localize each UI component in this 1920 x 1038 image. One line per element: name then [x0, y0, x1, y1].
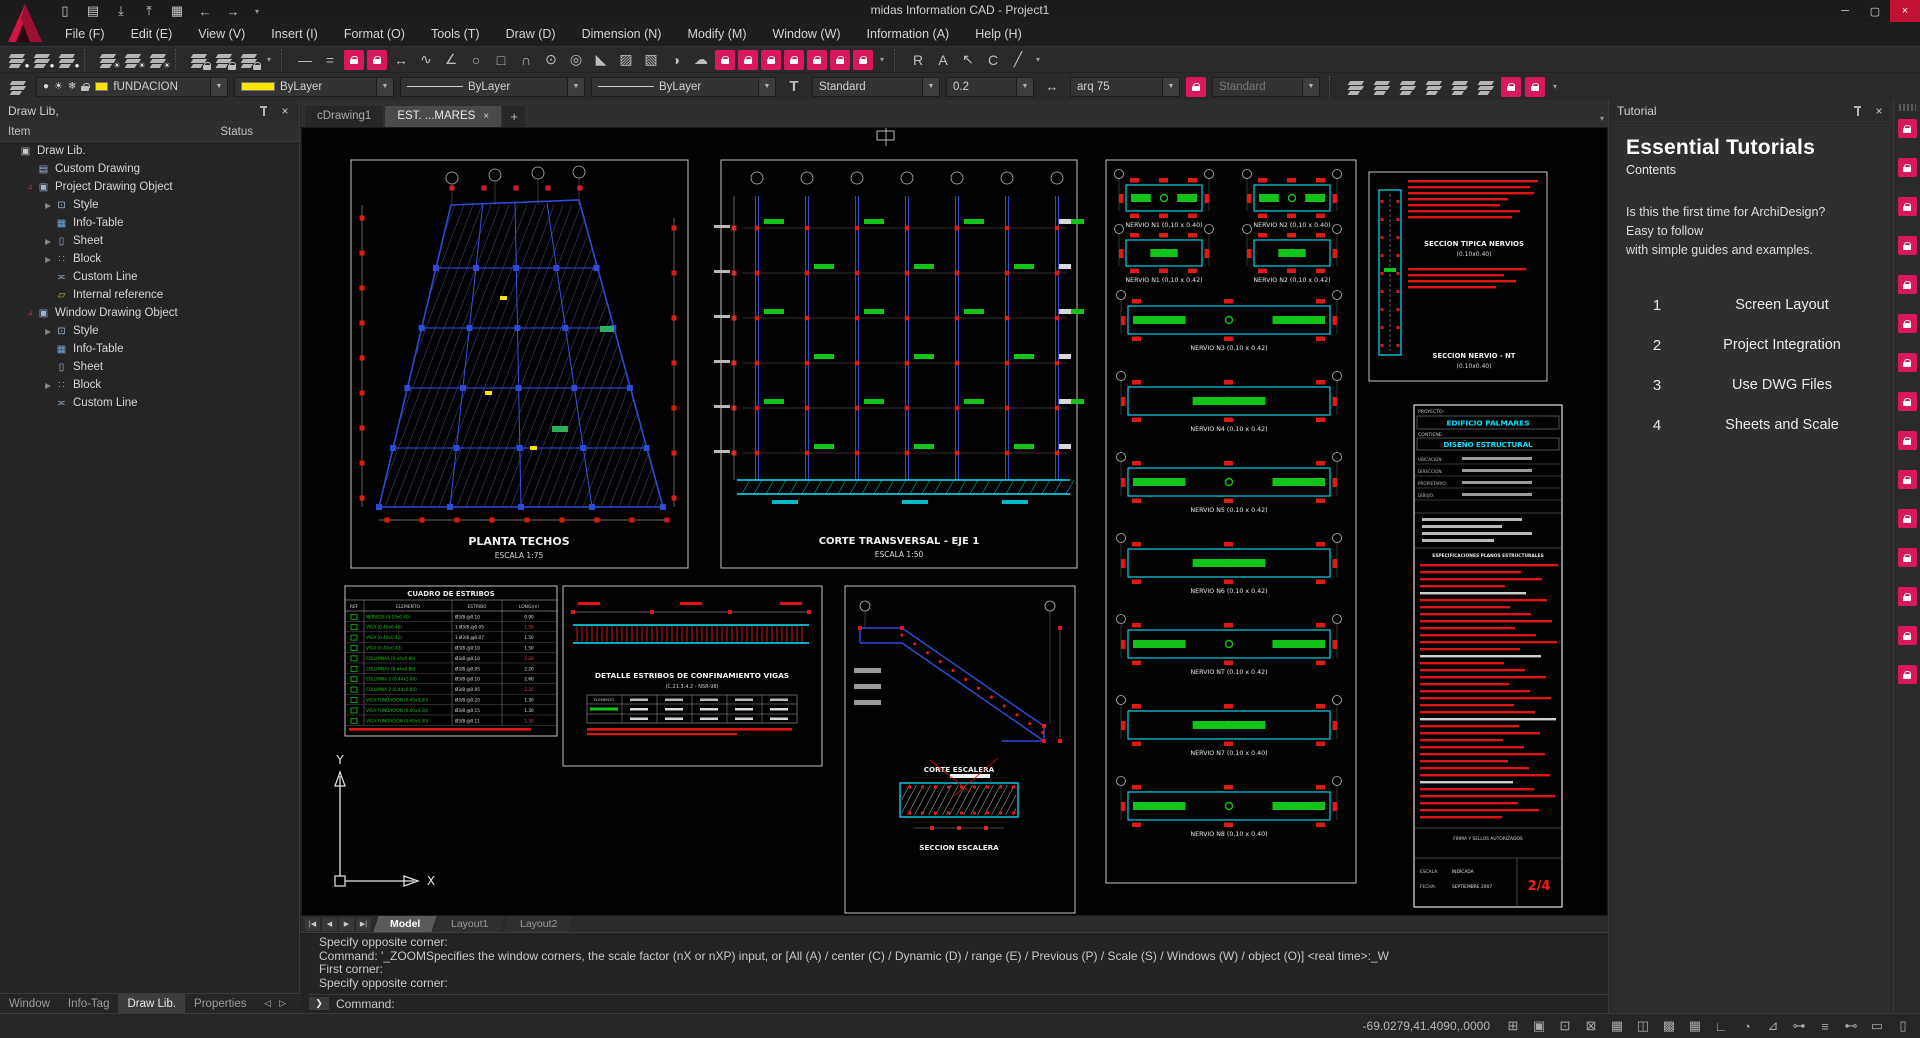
style-icon: ⊡: [54, 326, 69, 337]
layer-on-icon: ●: [43, 81, 49, 92]
tree-item-label: Info-Table: [73, 343, 124, 355]
tutorial-item-label: Screen Layout: [1688, 297, 1876, 313]
properties-bar: ● ☀ ❄ fUNDACION ▼ ByLayer ▼ ByLayer ▼: [0, 72, 1920, 100]
quick-access-options-icon[interactable]: ▾: [252, 7, 262, 16]
layer-translate-icon[interactable]: [1371, 76, 1393, 98]
tree-item-info-table[interactable]: ▦Info-Table: [0, 214, 299, 232]
locked-tool-icon[interactable]: [1898, 314, 1917, 333]
info-table-icon: ▦: [54, 218, 69, 229]
collapsed-icon[interactable]: ▶: [42, 237, 54, 246]
stirrup-length: 1.30: [524, 718, 534, 723]
clean-screen-icon[interactable]: ▭: [1866, 1016, 1888, 1036]
menu-item-format[interactable]: Format (O): [331, 22, 418, 46]
tree-item-label: Style: [73, 199, 99, 211]
window-title: midas Information CAD - Project1: [0, 3, 1920, 17]
otrack-icon[interactable]: ⊶: [1788, 1016, 1810, 1036]
double-line-tool-icon[interactable]: =: [319, 49, 341, 71]
stirrup-col-header: LONG(m): [519, 604, 539, 610]
linetype-sample: [407, 86, 463, 88]
layer-thaw-icon: ☀: [54, 81, 63, 92]
collapsed-icon[interactable]: ▶: [42, 255, 54, 264]
panel-tab-arrows: ◁▷: [264, 998, 300, 1009]
tree-item-custom-line[interactable]: ≍Custom Line: [0, 394, 299, 412]
layer-match-icon[interactable]: [1423, 76, 1445, 98]
pin-icon[interactable]: ⊡: [1554, 1016, 1576, 1036]
titleblock-scale-value: INDICADA: [1452, 869, 1474, 875]
stirrup-element: COLUMNA 2 (0.44x1.06): [366, 677, 417, 682]
tree-item-internal-reference[interactable]: ▱Internal reference: [0, 286, 299, 304]
draw-lib-panel-title: Draw Lib,: [8, 104, 59, 118]
lineweight-combo[interactable]: ByLayer ▼: [591, 77, 776, 97]
gradient-tool-icon[interactable]: ◑: [665, 49, 687, 71]
drawing-tab-cdrawing1[interactable]: cDrawing1: [305, 106, 383, 127]
tutorial-item-sheets-and-scale[interactable]: 4Sheets and Scale: [1626, 405, 1876, 445]
stirrup-length: 2.60: [524, 677, 534, 682]
panel-tab-properties[interactable]: Properties: [185, 994, 255, 1014]
stirrup-element: VIGA (0.40x0.42): [366, 635, 402, 640]
tree-item-label: Custom Drawing: [55, 163, 140, 175]
menu-item-insert[interactable]: Insert (I): [258, 22, 331, 46]
drawing-tab-strip: cDrawing1EST. ...MARES×+▾: [301, 100, 1608, 127]
layer-visibility-3-icon[interactable]: ●: [56, 49, 78, 71]
ui-lock-icon[interactable]: ▯: [1892, 1016, 1914, 1036]
menu-item-view[interactable]: View (V): [185, 22, 258, 46]
titleblock-scale-label: ESCALA:: [1420, 869, 1439, 875]
stirrup-spec: Ø3/8 @0.10: [455, 677, 480, 682]
copy-properties-icon[interactable]: C: [982, 49, 1004, 71]
layer-freeze-icon[interactable]: ☀: [97, 49, 119, 71]
stirrup-length: 1.50: [524, 625, 534, 630]
expanded-icon[interactable]: ⊿: [24, 183, 36, 191]
stirrup-length: 1.30: [524, 698, 534, 703]
nervio-label: NERVIO N1 (0.10 x 0.40): [1125, 222, 1202, 229]
tree-item-label: Custom Line: [73, 397, 138, 409]
pin-icon[interactable]: [258, 105, 270, 117]
edit-block-icon[interactable]: ╱: [1007, 49, 1029, 71]
minimize-button[interactable]: ─: [1830, 0, 1860, 22]
command-history-line: Command: '_ZOOMSpecifies the window corn…: [319, 950, 1608, 964]
tree-item-window-drawing-object[interactable]: ⊿▣Window Drawing Object: [0, 304, 299, 322]
locked-tool-icon[interactable]: [1898, 236, 1917, 255]
redo-icon[interactable]: →: [224, 4, 242, 19]
tab-overflow-icon[interactable]: ▾: [1600, 114, 1604, 123]
current-text-style: Standard: [819, 81, 866, 93]
layout-nav-icon[interactable]: ◀: [322, 918, 337, 931]
arc-tool-icon[interactable]: ∩: [515, 49, 537, 71]
tree-item-style[interactable]: ▶⊡Style: [0, 322, 299, 340]
dim-style-combo-arrow[interactable]: ▼: [1162, 78, 1179, 96]
tutorial-item-screen-layout[interactable]: 1Screen Layout: [1626, 285, 1876, 325]
tutorial-item-use-dwg-files[interactable]: 3Use DWG Files: [1626, 365, 1876, 405]
collapsed-icon[interactable]: ▶: [42, 381, 54, 390]
stirrup-col-header: ELEMENTO: [396, 604, 421, 610]
text-style-combo[interactable]: Standard ▼: [812, 77, 940, 97]
tutorial-item-project-integration[interactable]: 2Project Integration: [1626, 325, 1876, 365]
panel-tab-scroll-icon[interactable]: ◁: [264, 998, 271, 1009]
titleblock-field-label: PROPIETARIO:: [1418, 481, 1447, 486]
lineweight-icon[interactable]: ≡: [1814, 1016, 1836, 1036]
locked-tool-icon[interactable]: [367, 50, 387, 70]
color-combo[interactable]: ByLayer ▼: [234, 77, 394, 97]
snap-grid-icon[interactable]: ▦: [1684, 1016, 1706, 1036]
rectangle-tool-icon[interactable]: □: [490, 49, 512, 71]
ortho-icon[interactable]: ∟: [1710, 1016, 1732, 1036]
nervio-nt-title: SECCION NERVIO - NT: [1433, 352, 1516, 360]
dim-style-icon: ↔: [1040, 76, 1064, 98]
current-text-size: 0.2: [953, 81, 969, 93]
stirrup-length: 0.90: [524, 614, 534, 619]
stirrup-spec: 1 Ø3/8 @0.07: [455, 635, 484, 640]
polar-icon[interactable]: ◔: [1736, 1016, 1758, 1036]
undo-icon[interactable]: ←: [196, 4, 214, 19]
tree-item-label: Style: [73, 325, 99, 337]
locked-tool-icon[interactable]: [1898, 119, 1917, 138]
export-icon[interactable]: ▦: [168, 3, 186, 19]
stirrup-element: VIGA (0.40x0.40): [366, 625, 402, 630]
quick-access-toolbar: ▯▤⤓⤒▦←→▾: [56, 1, 262, 21]
drawing-tab-label: cDrawing1: [317, 106, 371, 127]
nervio-label: NERVIO N8 (0.10 x 0.40): [1190, 831, 1267, 838]
tutorial-intro-line: Is this the first time for ArchiDesign?: [1626, 203, 1876, 222]
drawing-object-icon: ▣: [36, 308, 51, 319]
dim-style-combo[interactable]: arq 75 ▼: [1070, 77, 1180, 97]
nervio-label: NERVIO N3 (0.10 x 0.42): [1190, 345, 1267, 352]
titleblock-spec-header: ESPECIFICACIONES PLANOS ESTRUCTURALES: [1432, 553, 1544, 559]
command-prompt-icon: ❯: [309, 997, 329, 1010]
layout-tab-bar: |◀◀▶▶|ModelLayout1Layout2: [301, 916, 1608, 932]
tree-item-label: Window Drawing Object: [55, 307, 178, 319]
toolbar-grip[interactable]: [1899, 104, 1916, 111]
locked-tool-icon[interactable]: [761, 50, 781, 70]
locked-tool-icon[interactable]: [1898, 548, 1917, 567]
tutorial-subheading: Contents: [1626, 163, 1876, 177]
model-canvas[interactable]: PLANTA TECHOSESCALA 1:75CORTE TRANSVERSA…: [301, 127, 1608, 916]
stair-detail-title: SECCION ESCALERA: [919, 843, 999, 852]
stirrup-col-header: ESTRIBO: [468, 604, 488, 610]
tutorial-item-label: Sheets and Scale: [1688, 417, 1876, 433]
stirrup-element: COLUMNA 2 (0.44x0.86): [366, 687, 417, 692]
menu-item-modify[interactable]: Modify (M): [674, 22, 759, 46]
spline-tool-icon[interactable]: ∿: [415, 49, 437, 71]
layer-freeze-3-icon[interactable]: ☀: [147, 49, 169, 71]
locked-tool-icon[interactable]: [1898, 353, 1917, 372]
stirrup-spec: Ø3/8 @0.10: [455, 656, 480, 661]
view-box-icon[interactable]: ⊠: [1580, 1016, 1602, 1036]
ellipse-tool-icon[interactable]: ○: [465, 49, 487, 71]
hatch-2-tool-icon[interactable]: ▧: [640, 49, 662, 71]
circle-tool-icon[interactable]: ⊙: [540, 49, 562, 71]
text-size-combo[interactable]: 0.2 ▼: [946, 77, 1034, 97]
locked-tool-icon[interactable]: [1898, 587, 1917, 606]
current-table-style: Standard: [1219, 81, 1266, 93]
column-header-status: Status: [220, 126, 291, 138]
locked-tool-icon[interactable]: [1898, 470, 1917, 489]
layout-nav-icon[interactable]: ▶|: [356, 918, 371, 931]
tree-item-label: Draw Lib.: [37, 145, 86, 157]
locked-tool-icon[interactable]: [1898, 392, 1917, 411]
titleblock-project-label: PROYECTO:: [1418, 409, 1445, 415]
title-bar: midas Information CAD - Project1 ─ ▢ × ▯…: [0, 0, 1920, 22]
stirrup-length: 2.20: [524, 666, 534, 671]
layer-merge-icon[interactable]: [1449, 76, 1471, 98]
tree-item-custom-drawing[interactable]: ▤Custom Drawing: [0, 160, 299, 178]
layer-visibility-2-icon[interactable]: ●: [31, 49, 53, 71]
layer-unlock-icon[interactable]: [238, 49, 260, 71]
tree-item-sheet[interactable]: ▯Sheet: [0, 358, 299, 376]
save-icon[interactable]: ⤓: [112, 3, 130, 19]
expanded-icon[interactable]: ⊿: [24, 309, 36, 317]
layer-combo[interactable]: ● ☀ ❄ fUNDACION ▼: [36, 77, 228, 97]
info-table-icon: ▦: [54, 344, 69, 355]
menu-item-information[interactable]: Information (A): [854, 22, 963, 46]
stirrup-spec: Ø3/8 @0.05: [455, 666, 480, 671]
text-style-combo-arrow[interactable]: ▼: [922, 78, 939, 96]
locked-tool-icon[interactable]: [1898, 197, 1917, 216]
titleblock-date-label: FECHA:: [1420, 884, 1436, 890]
command-window[interactable]: Specify opposite corner:Command: '_ZOOMS…: [301, 932, 1608, 1013]
column-header-item: Item: [8, 126, 30, 138]
stirrup-spec: Ø3/8 @0.20: [455, 698, 480, 703]
locked-tool-icon[interactable]: [1898, 665, 1917, 684]
grid-icon[interactable]: ▩: [1658, 1016, 1680, 1036]
tree-item-label: Block: [73, 253, 101, 265]
layer-lock-2-icon[interactable]: [213, 49, 235, 71]
tutorial-intro-line: Easy to follow: [1626, 222, 1876, 241]
stirrup-length: 1.30: [524, 708, 534, 713]
angle-tool-icon[interactable]: ∠: [440, 49, 462, 71]
draw-lib-tree: ▣Draw Lib.▤Custom Drawing⊿▣Project Drawi…: [0, 142, 299, 412]
save-as-icon[interactable]: ⤒: [140, 3, 158, 19]
close-button[interactable]: ×: [1890, 0, 1920, 22]
layer-color-swatch: [95, 82, 108, 91]
lineweight-combo-arrow[interactable]: ▼: [758, 78, 775, 96]
toolbar-separator: [281, 49, 288, 71]
maximize-button[interactable]: ▢: [1860, 0, 1890, 22]
titleblock-page-number: 2/4: [1528, 879, 1551, 894]
nervio-label: NERVIO N2 (0.10 x 0.42): [1253, 277, 1330, 284]
layer-manager-icon[interactable]: [6, 76, 30, 98]
custom-line-icon: ≍: [54, 398, 69, 409]
current-lineweight: ByLayer: [659, 81, 701, 93]
sheet-icon: ▯: [54, 362, 69, 373]
toolbar-more-icon[interactable]: ▾: [1549, 76, 1561, 98]
tutorial-heading: Essential Tutorials: [1626, 136, 1876, 160]
locked-tool-icon[interactable]: [1525, 77, 1545, 97]
layer-states-icon[interactable]: [1345, 76, 1367, 98]
stirrup-table-title: CUADRO DE ESTRIBOS: [407, 590, 495, 598]
paste-special-icon[interactable]: R: [907, 49, 929, 71]
dyn-dim-icon[interactable]: ⊷: [1840, 1016, 1862, 1036]
titleblock-field-label: DIBUJO:: [1418, 493, 1434, 498]
plan-title: PLANTA TECHOS: [468, 535, 569, 548]
stirrup-spec: 1 Ø3/8 @0.05: [455, 625, 484, 630]
tree-item-custom-line[interactable]: ≍Custom Line: [0, 268, 299, 286]
menu-item-dimension[interactable]: Dimension (N): [569, 22, 675, 46]
toolbar-more-icon[interactable]: ▾: [263, 49, 275, 71]
pin-alert-icon[interactable]: ▣: [1528, 1016, 1550, 1036]
text-size-combo-arrow[interactable]: ▼: [1016, 78, 1033, 96]
toolbar-more-icon[interactable]: ▾: [1032, 49, 1044, 71]
menu-item-file[interactable]: File (F): [52, 22, 118, 46]
layer-freeze-icon: ❄: [68, 81, 76, 92]
locked-tool-icon[interactable]: [1501, 77, 1521, 97]
layout-nav-icon[interactable]: ▶: [339, 918, 354, 931]
stirrup-element: VIGA FUNDACION (0.40x0.30): [366, 708, 429, 713]
nervio-label: NERVIO NT (0.10 x 0.42): [1190, 669, 1267, 676]
open-folder-icon[interactable]: ▤: [84, 3, 102, 19]
current-layer: fUNDACION: [113, 81, 178, 93]
osnap-icon[interactable]: ⊿: [1762, 1016, 1784, 1036]
stretch-tool-icon[interactable]: ↔: [390, 49, 412, 71]
tree-item-style[interactable]: ▶⊡Style: [0, 196, 299, 214]
style-icon: ⊡: [54, 200, 69, 211]
menu-item-window[interactable]: Window (W): [759, 22, 853, 46]
nervio-label: NERVIO N5 (0.10 x 0.42): [1190, 507, 1267, 514]
tree-item-info-table[interactable]: ▦Info-Table: [0, 340, 299, 358]
typical-section-dim: (0.10x0.40): [1457, 251, 1492, 258]
nervio-label: NERVIO N7 (0.10 x 0.40): [1190, 750, 1267, 757]
stirrup-element: VIGA (0.40x0.42): [366, 646, 402, 651]
layer-prev-icon[interactable]: [1397, 76, 1419, 98]
locked-tool-icon[interactable]: [807, 50, 827, 70]
tutorial-item-number: 2: [1626, 337, 1688, 354]
layer-tools-group: ▾: [1345, 76, 1561, 98]
menu-item-tools[interactable]: Tools (T): [418, 22, 493, 46]
add-drawing-tab-button[interactable]: +: [503, 106, 525, 127]
locked-tool-icon[interactable]: [784, 50, 804, 70]
panel-tab-bar: WindowInfo-TagDraw Lib.Properties◁▷: [0, 993, 300, 1013]
layout-nav-icon[interactable]: |◀: [305, 918, 320, 931]
stirrup-length: 1.50: [524, 635, 534, 640]
collapsed-icon[interactable]: ▶: [42, 201, 54, 210]
wedge-tool-icon[interactable]: ◣: [590, 49, 612, 71]
drawlib-icon: ▣: [18, 146, 33, 157]
tree-item-label: Block: [73, 379, 101, 391]
block-icon: ∷: [54, 254, 69, 265]
ucs-y-label: Y: [335, 753, 344, 767]
close-panel-icon[interactable]: ×: [1873, 104, 1885, 118]
tree-item-block[interactable]: ▶∷Block: [0, 376, 299, 394]
locked-tool-icon[interactable]: [853, 50, 873, 70]
close-tab-icon[interactable]: ×: [483, 106, 489, 127]
table-style-combo: Standard ▼: [1212, 77, 1320, 97]
hatch-tool-icon[interactable]: ▨: [615, 49, 637, 71]
linetype-combo[interactable]: ByLayer ▼: [400, 77, 585, 97]
pan-icon[interactable]: ⊞: [1502, 1016, 1524, 1036]
locked-tool-icon[interactable]: [830, 50, 850, 70]
stirrup-spec: Ø3/8 @0.15: [455, 708, 480, 713]
locked-tool-icon[interactable]: [738, 50, 758, 70]
stirrup-spec: Ø3/8 @0.05: [455, 687, 480, 692]
stirrup-spec: Ø3/8 @0.10: [455, 646, 480, 651]
tree-item-sheet[interactable]: ▶▯Sheet: [0, 232, 299, 250]
layout-tab-model[interactable]: Model: [373, 916, 437, 932]
current-color-swatch: [241, 82, 275, 91]
drawing-tab-est-mares[interactable]: EST. ...MARES×: [385, 106, 501, 127]
stirrup-length: 2.20: [524, 656, 534, 661]
block-icon: ∷: [54, 380, 69, 391]
custom-drawing-icon: ▤: [36, 164, 51, 175]
typical-section-title: SECCION TIPICA NERVIOS: [1424, 240, 1524, 248]
titleblock-project: EDIFICIO PALMARES: [1446, 419, 1529, 428]
stirrup-element: COLUMNAS (0.44x0.86): [366, 656, 416, 661]
tutorial-item-number: 1: [1626, 297, 1688, 314]
linetype-combo-arrow[interactable]: ▼: [567, 78, 584, 96]
new-file-icon[interactable]: ▯: [56, 3, 74, 19]
layer-delete-icon[interactable]: [1475, 76, 1497, 98]
layer-visibility-icon[interactable]: ●: [6, 49, 28, 71]
titleblock-field-label: DIRECCION:: [1418, 469, 1443, 474]
layer-lock-icon: [81, 83, 90, 91]
selection-lock-icon[interactable]: ◫: [1632, 1016, 1654, 1036]
layout-tab-layout1[interactable]: Layout1: [435, 916, 506, 932]
close-panel-icon[interactable]: ×: [279, 104, 291, 118]
locked-tool-icon[interactable]: [1898, 509, 1917, 528]
menu-item-help[interactable]: Help (H): [962, 22, 1035, 46]
nervio-label: NERVIO N2 (0.10 x 0.40): [1253, 222, 1330, 229]
menu-item-draw[interactable]: Draw (D): [493, 22, 569, 46]
multileader-icon[interactable]: ↖: [957, 49, 979, 71]
block-select-icon[interactable]: ▦: [1606, 1016, 1628, 1036]
toolbar-more-icon[interactable]: ▾: [876, 49, 888, 71]
custom-line-icon: ≍: [54, 272, 69, 283]
locked-table-style-icon: [1186, 77, 1206, 97]
layer-lock-icon[interactable]: [188, 49, 210, 71]
color-combo-arrow[interactable]: ▼: [376, 78, 393, 96]
tree-item-label: Sheet: [73, 235, 103, 247]
tree-item-label: Info-Table: [73, 217, 124, 229]
panel-tab-draw-lib-[interactable]: Draw Lib.: [118, 994, 185, 1014]
panel-tab-window[interactable]: Window: [0, 994, 59, 1014]
toolbar-separator: [175, 49, 182, 71]
titleblock-firma: FIRMA Y SELLOS AUTORIZADOS: [1453, 836, 1523, 842]
collapsed-icon[interactable]: ▶: [42, 327, 54, 336]
locked-tool-icon[interactable]: [1898, 158, 1917, 177]
command-prompt[interactable]: Command:: [336, 997, 395, 1011]
tree-item-project-drawing-object[interactable]: ⊿▣Project Drawing Object: [0, 178, 299, 196]
donut-tool-icon[interactable]: ◎: [565, 49, 587, 71]
nervio-label: NERVIO N1 (0.10 x 0.42): [1125, 277, 1202, 284]
panel-tab-scroll-icon[interactable]: ▷: [279, 998, 286, 1009]
locked-tool-icon[interactable]: [715, 50, 735, 70]
tutorial-panel: Tutorial × Essential Tutorials Contents …: [1608, 100, 1893, 1013]
panel-tab-info-tag[interactable]: Info-Tag: [59, 994, 119, 1014]
text-insert-icon[interactable]: A: [932, 49, 954, 71]
line-tool-icon[interactable]: —: [294, 49, 316, 71]
tree-item-label: Internal reference: [73, 289, 163, 301]
detail-table-header: ELEMENTO: [594, 697, 615, 702]
tutorial-item-label: Project Integration: [1688, 337, 1876, 353]
locked-tool-icon[interactable]: [1898, 431, 1917, 450]
tree-item-label: Sheet: [73, 361, 103, 373]
revision-cloud-tool-icon[interactable]: ☁: [690, 49, 712, 71]
stirrup-length: 1.50: [524, 646, 534, 651]
tree-item-draw-lib-[interactable]: ▣Draw Lib.: [0, 142, 299, 160]
locked-tool-icon[interactable]: [1898, 275, 1917, 294]
draw-lib-panel: Draw Lib, × Item Status ▣Draw Lib.▤Custo…: [0, 100, 300, 1013]
menu-item-edit[interactable]: Edit (E): [118, 22, 186, 46]
locked-tool-icon[interactable]: [344, 50, 364, 70]
text-style-icon: T: [782, 76, 806, 98]
locked-tool-icon[interactable]: [1898, 626, 1917, 645]
layer-combo-arrow[interactable]: ▼: [210, 78, 227, 96]
layout-tab-layout2[interactable]: Layout2: [503, 916, 574, 932]
layer-freeze-2-icon[interactable]: ☀: [122, 49, 144, 71]
pin-icon[interactable]: [1852, 105, 1864, 117]
lineweight-sample: [598, 86, 654, 88]
tutorial-item-number: 4: [1626, 417, 1688, 434]
tree-item-block[interactable]: ▶∷Block: [0, 250, 299, 268]
